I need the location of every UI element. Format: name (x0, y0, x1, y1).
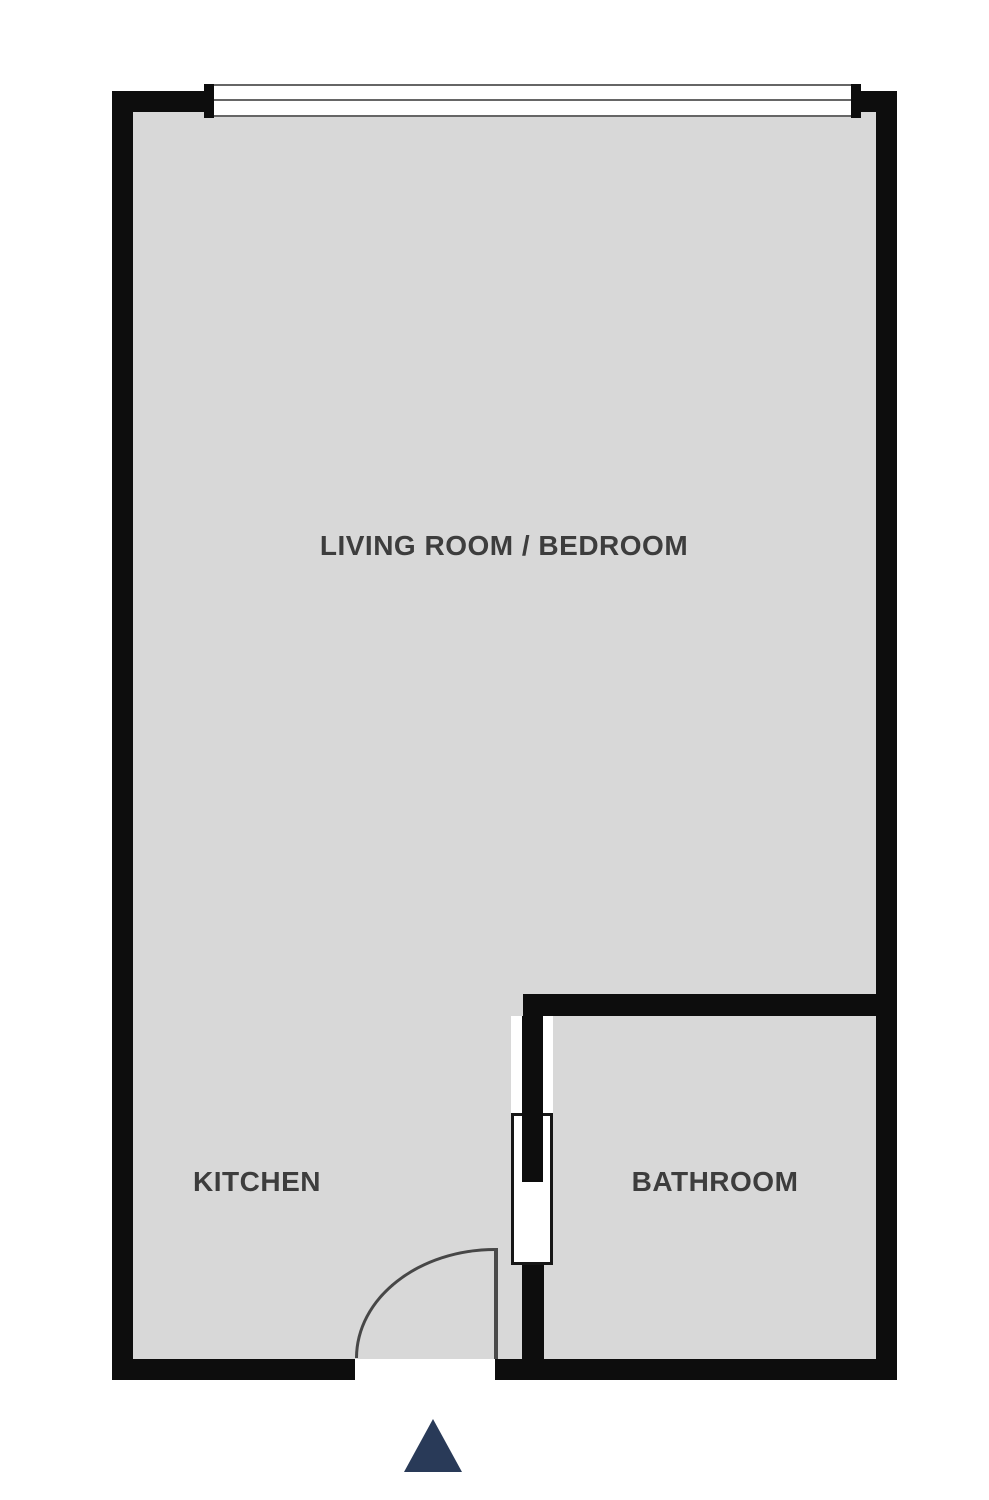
living-room-bedroom-label: LIVING ROOM / BEDROOM (320, 530, 688, 562)
floorplan: LIVING ROOM / BEDROOM KITCHEN BATHROOM (0, 0, 989, 1500)
door-leaf (494, 1248, 498, 1359)
window-jamb-left (204, 84, 214, 118)
wall-bottom-right (495, 1359, 897, 1380)
wall-bathroom-lower (522, 1265, 544, 1359)
window-icon (214, 84, 851, 117)
window-glass-line (214, 99, 851, 102)
wall-right (876, 91, 897, 1380)
wall-bottom-left (112, 1359, 355, 1380)
pocket-door-track (522, 1016, 543, 1182)
entrance-arrow-icon (404, 1419, 462, 1472)
wall-bathroom-top (523, 994, 876, 1016)
kitchen-label: KITCHEN (193, 1166, 321, 1198)
window-jamb-right (851, 84, 861, 118)
wall-left (112, 91, 133, 1380)
bathroom-label: BATHROOM (632, 1166, 799, 1198)
